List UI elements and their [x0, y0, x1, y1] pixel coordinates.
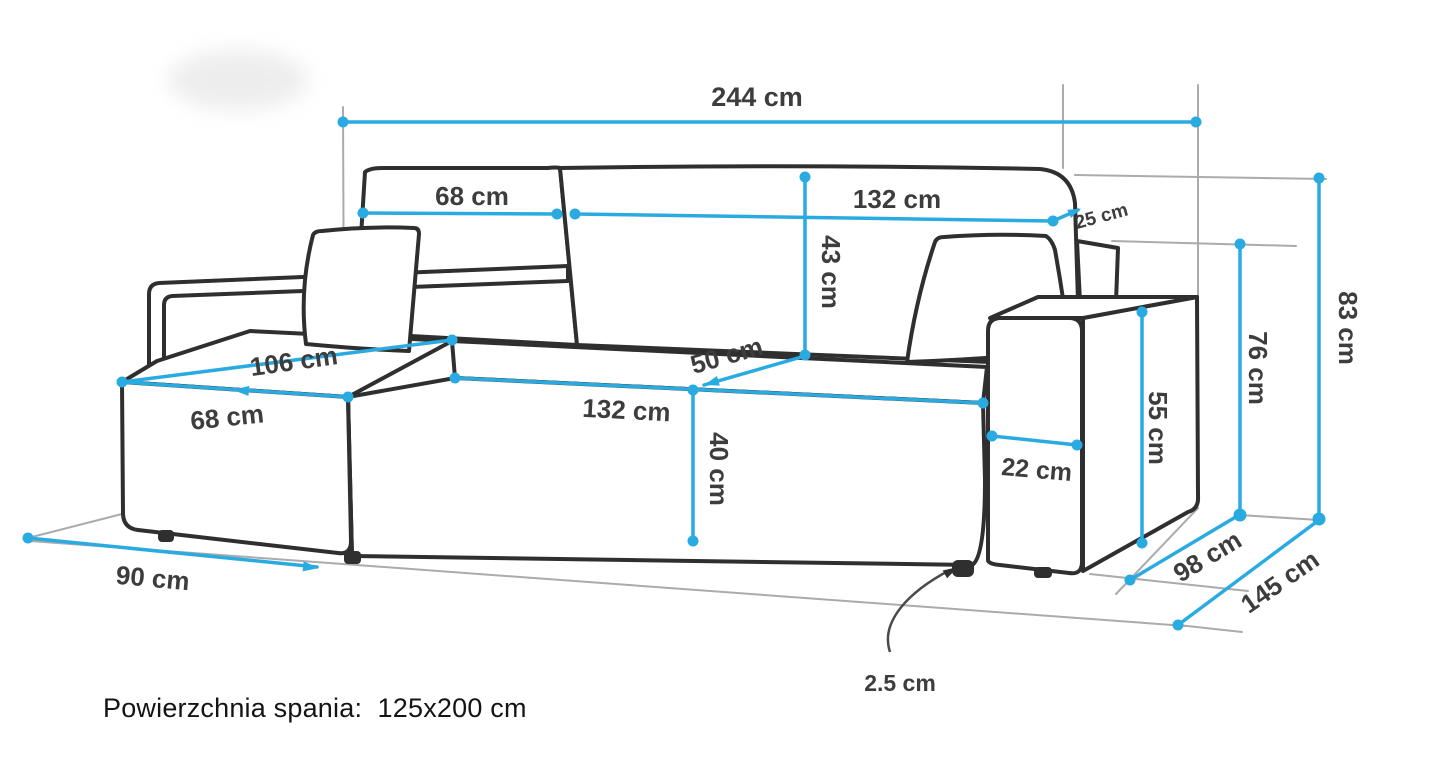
- sleeping-area-note: Powierzchnia spania: 125x200 cm: [103, 693, 527, 724]
- background-smudge: [168, 50, 308, 110]
- backrest-side-panel: [1077, 241, 1118, 302]
- guide-total-height-top: [1075, 175, 1326, 179]
- dim-backrest-left: 68 cm: [435, 181, 509, 211]
- dim-total-width: 244 cm: [711, 82, 803, 112]
- dimline-backrest-left: [363, 213, 557, 214]
- dim-total-depth: 145 cm: [1235, 544, 1324, 619]
- leg-corner: [344, 551, 361, 564]
- sofa-dimension-diagram: 244 cm 68 cm 132 cm 25 cm 43 cm 50 cm 10…: [0, 0, 1445, 782]
- diagram-canvas: 244 cm 68 cm 132 cm 25 cm 43 cm 50 cm 10…: [0, 0, 1445, 782]
- leg-armrest: [1034, 567, 1052, 578]
- dim-back-height: 76 cm: [1243, 331, 1273, 405]
- guide-back-height-top: [1112, 241, 1296, 246]
- dim-total-height: 83 cm: [1333, 291, 1363, 365]
- dim-leg-height: 2.5 cm: [864, 670, 936, 696]
- guide-floor-tick: [1178, 625, 1242, 632]
- dim-seat-width: 132 cm: [582, 393, 672, 428]
- dim-backrest-depth: 25 cm: [1073, 200, 1130, 234]
- leg-height-leader: [888, 570, 950, 652]
- dim-armrest-height: 55 cm: [1143, 391, 1173, 465]
- leg-chaise: [158, 530, 174, 542]
- dim-backrest-height: 43 cm: [816, 235, 846, 309]
- dim-chaise-side: 90 cm: [115, 560, 191, 596]
- pillow-left: [304, 227, 419, 351]
- guide-chaise-corner: [28, 514, 122, 538]
- dim-seat-height: 40 cm: [704, 432, 734, 506]
- guide-floor-back: [1239, 515, 1319, 520]
- dim-backrest-right: 132 cm: [853, 184, 941, 214]
